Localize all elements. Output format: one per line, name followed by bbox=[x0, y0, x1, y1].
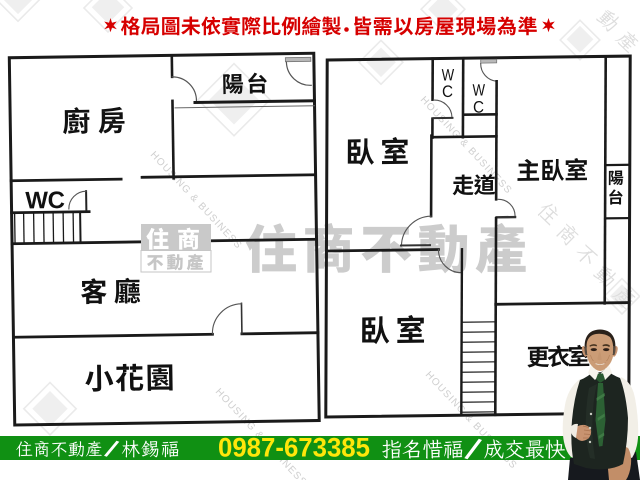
svg-text:0987-673385: 0987-673385 bbox=[218, 432, 370, 462]
svg-text:W: W bbox=[473, 81, 486, 99]
svg-text:W: W bbox=[442, 66, 455, 84]
svg-text:WC: WC bbox=[25, 187, 65, 215]
svg-text:C: C bbox=[442, 83, 453, 101]
